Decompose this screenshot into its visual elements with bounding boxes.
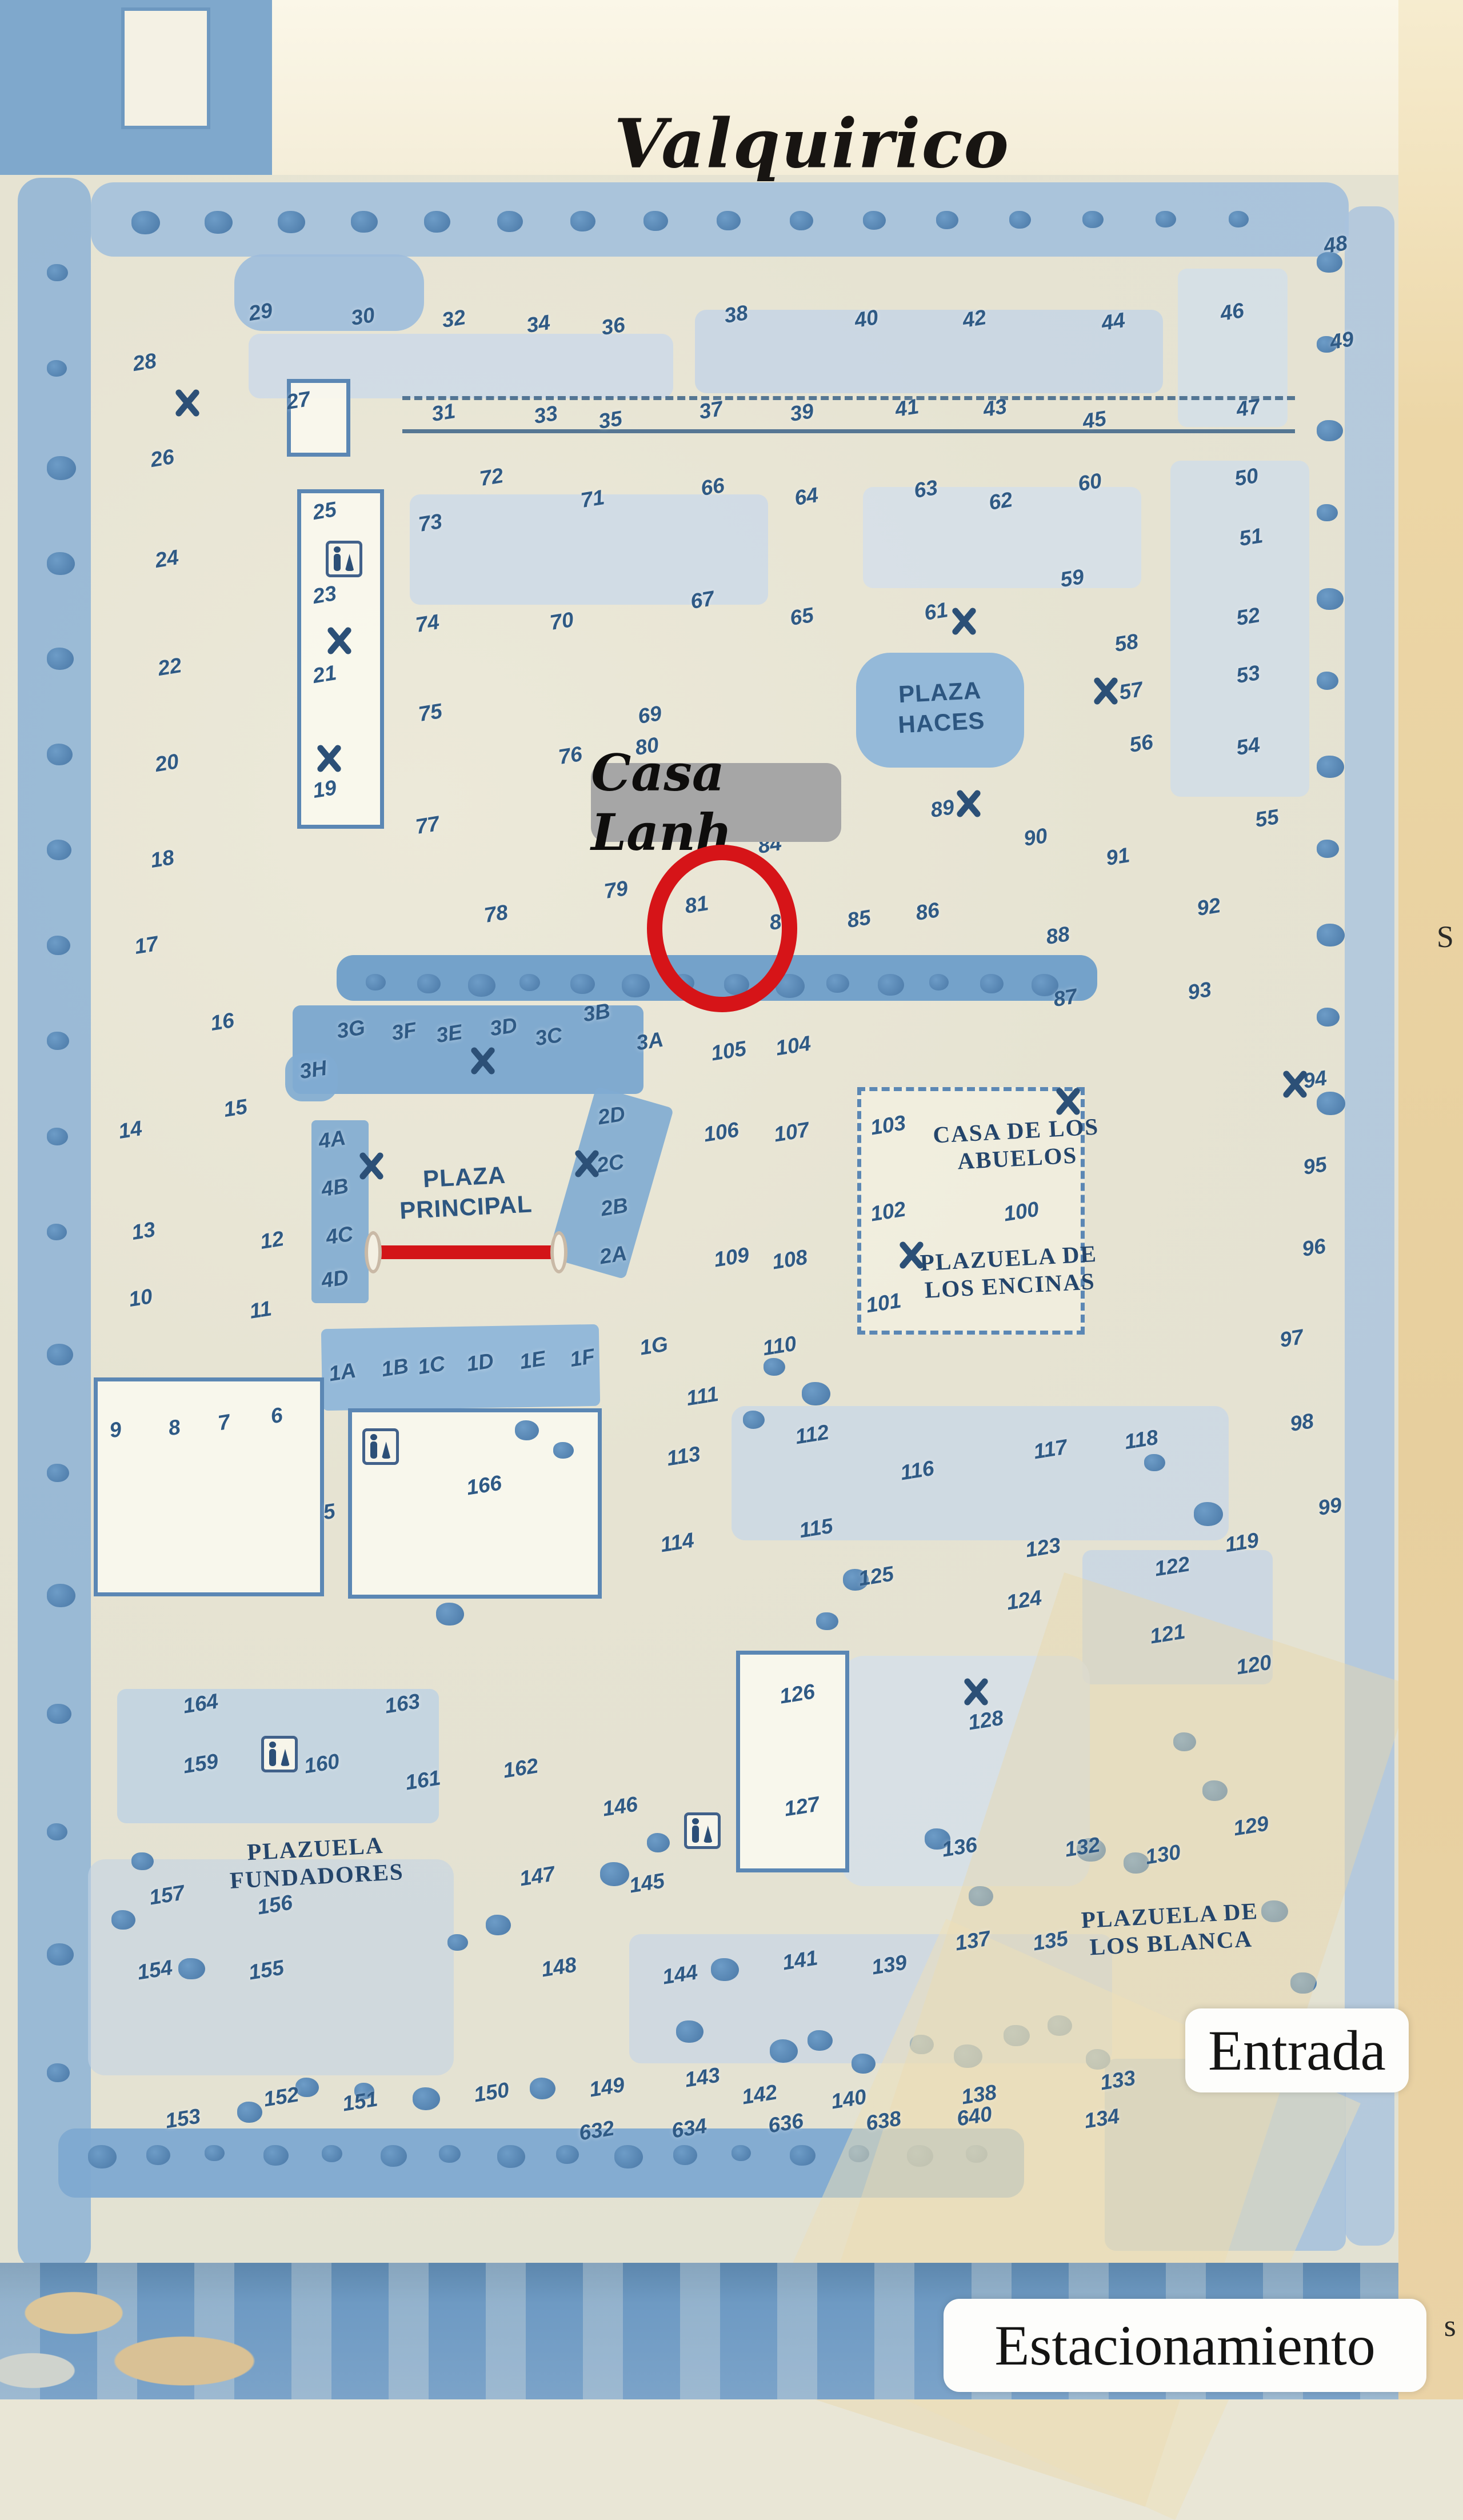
lot-label-4D: 4D [320,1265,350,1293]
lot-label-12: 12 [259,1227,286,1254]
lot-label-59: 59 [1059,565,1086,592]
map-block [695,310,1163,394]
tree-icon [1194,1502,1223,1526]
tree-icon [237,2102,262,2122]
tree-icon [1317,756,1344,778]
tree-icon [47,1704,71,1724]
lot-label-155: 155 [247,1955,286,1984]
lot-label-1E: 1E [518,1347,547,1375]
entrada-label: Entrada [1208,2018,1386,2083]
tree-icon [770,2039,798,2062]
lot-label-91: 91 [1104,843,1131,870]
tree-icon [351,211,377,233]
tree-icon [1317,672,1338,689]
lot-label-43: 43 [981,394,1008,422]
tree-icon [980,974,1004,993]
lot-label-166: 166 [465,1471,504,1500]
estacionamiento-callout: Estacionamiento [944,2299,1426,2393]
tree-icon [47,840,71,860]
lot-label-55: 55 [1253,805,1280,832]
lot-label-164: 164 [181,1689,220,1718]
lot-label-77: 77 [414,812,441,839]
tree-icon [497,211,522,231]
tree-icon [47,936,70,955]
lot-label-48: 48 [1322,231,1349,258]
tree-icon [47,1128,68,1145]
lot-label-79: 79 [602,876,629,904]
tree-icon [614,2145,643,2168]
lot-label-634: 634 [670,2114,709,2143]
lot-label-69: 69 [636,701,663,729]
lot-label-40: 40 [853,305,880,333]
lot-label-86: 86 [914,898,941,925]
lot-label-29: 29 [247,298,274,326]
scale-bar-end-right [550,1231,567,1273]
lot-label-3D: 3D [488,1013,518,1041]
lot-label-13: 13 [130,1217,157,1245]
tree-icon [47,1584,75,1607]
tree-icon [47,552,75,576]
tree-icon [497,2145,525,2168]
highlight-scale-bar [373,1245,559,1259]
tree-icon [131,1852,154,1871]
tree-icon [439,2145,461,2163]
tree-icon [808,2030,833,2051]
lot-label-111: 111 [685,1382,720,1411]
tree-icon [468,974,495,996]
tree-icon [1082,211,1103,228]
lot-label-2B: 2B [599,1193,630,1221]
tree-icon [878,974,904,996]
lot-label-54: 54 [1234,733,1261,760]
lot-label-163: 163 [383,1689,422,1718]
lot-label-30: 30 [349,303,376,330]
lot-label-22: 22 [156,653,183,681]
lot-label-17: 17 [133,932,159,959]
lot-label-46: 46 [1218,298,1245,326]
lot-label-117: 117 [1032,1435,1069,1464]
lot-label-15: 15 [222,1095,249,1123]
lot-label-44: 44 [1100,308,1127,336]
lot-label-60: 60 [1077,469,1104,496]
lot-label-18: 18 [149,845,176,873]
lot-label-640: 640 [955,2102,994,2131]
lot-label-53: 53 [1234,661,1261,688]
tree-icon [1229,211,1248,227]
tree-icon [1009,211,1030,229]
lot-label-50: 50 [1233,464,1260,491]
lot-label-36: 36 [599,313,626,340]
lot-label-39: 39 [788,399,815,426]
bottom-left-paths [0,2207,410,2399]
top-left-building [121,7,210,130]
area-label-plazuela-de-los-encinas: PLAZUELA DELOS ENCINAS [920,1240,1100,1304]
tree-icon [676,2020,703,2043]
crossed-utensils-icon [950,607,978,636]
lot-label-21: 21 [311,661,338,688]
casa-lanh-callout: Casa Lanh [591,763,841,842]
lot-label-159: 159 [181,1749,220,1778]
area-label-casa-de-los-abuelos: CASA DE LOSABUELOS [932,1113,1101,1176]
tree-icon [178,1958,205,1980]
lot-label-4C: 4C [324,1222,354,1250]
lot-label-1D: 1D [465,1349,495,1377]
lot-label-38: 38 [722,301,749,328]
lot-label-47: 47 [1234,394,1261,422]
tree-icon [790,2145,815,2166]
tree-icon [366,974,386,991]
tree-icon [205,2145,224,2161]
lot-label-10: 10 [127,1284,154,1312]
lot-label-99: 99 [1316,1493,1343,1520]
lot-label-4B: 4B [320,1174,350,1202]
tree-icon [1317,504,1338,521]
lot-label-14: 14 [117,1116,143,1144]
restroom-icon [684,1812,721,1849]
tree-icon [1317,1008,1340,1027]
lot-label-52: 52 [1234,603,1261,630]
lot-label-37: 37 [698,397,725,424]
lot-label-34: 34 [525,310,551,338]
lot-label-41: 41 [894,394,921,422]
crossed-utensils-icon [954,789,983,818]
lot-label-71: 71 [579,485,606,513]
lot-label-73: 73 [417,509,443,537]
tree-icon [381,2145,407,2167]
area-label-plazuela-fundadores: PLAZUELAFUNDADORES [227,1830,404,1894]
lot-label-42: 42 [961,305,988,333]
tree-icon [1317,1092,1345,1115]
tree-icon [600,1862,630,1886]
tree-icon [731,2145,751,2161]
tree-icon [852,2054,876,2074]
lot-label-93: 93 [1186,977,1213,1005]
highlight-circle [647,845,798,1012]
lot-label-98: 98 [1289,1409,1316,1436]
lot-label-56: 56 [1128,730,1154,757]
tree-icon [764,1358,785,1376]
map-block [1345,206,1394,2246]
tree-icon [929,974,949,990]
tree-icon [131,211,159,234]
lot-label-70: 70 [548,608,575,635]
lot-label-64: 64 [793,483,820,510]
tree-icon [278,211,305,233]
tree-icon [1156,211,1176,227]
tree-icon [47,744,73,765]
crossed-utensils-icon [325,626,354,655]
lot-label-88: 88 [1044,922,1071,949]
tree-icon [816,1612,838,1630]
lot-label-23: 23 [311,581,338,609]
tree-icon [515,1420,539,1440]
tree-icon [47,1344,73,1365]
crossed-utensils-icon [962,1678,990,1706]
tree-icon [802,1382,830,1405]
lot-label-3F: 3F [390,1018,418,1045]
tree-icon [711,1958,739,1981]
area-label-plaza-principal: PLAZAPRINCIPAL [397,1159,533,1226]
tree-icon [1317,588,1344,610]
lot-label-51: 51 [1237,524,1264,551]
restroom-icon [261,1736,298,1772]
lot-label-89: 89 [929,795,956,822]
tree-icon [530,2078,555,2099]
tree-icon [570,211,595,231]
tree-icon [47,1464,69,1482]
lot-label-2D: 2D [596,1102,626,1130]
lot-label-35: 35 [597,406,623,434]
tree-icon [863,211,885,229]
lot-label-3B: 3B [582,999,612,1027]
lot-label-3A: 3A [634,1027,665,1055]
tree-icon [826,974,849,992]
lot-label-61: 61 [923,598,950,626]
tree-icon [643,211,667,231]
area-label-plaza-haces: PLAZAHACES [896,676,985,740]
lot-label-25: 25 [311,497,338,525]
crossed-utensils-icon [357,1152,386,1180]
lot-label-72: 72 [478,464,505,491]
tree-icon [263,2145,289,2166]
lot-label-27: 27 [285,387,312,414]
tree-icon [743,1411,765,1428]
tree-icon [519,974,540,991]
lot-label-11: 11 [247,1296,273,1323]
tree-icon [622,974,650,997]
tree-icon [673,2145,697,2165]
lot-label-49: 49 [1328,327,1355,354]
lot-label-4A: 4A [317,1126,347,1154]
lot-label-101: 101 [864,1288,903,1317]
lot-label-45: 45 [1081,406,1108,434]
tree-icon [424,211,450,232]
crossed-utensils-icon [469,1047,497,1075]
tree-icon [447,1934,468,1951]
lot-label-154: 154 [136,1955,175,1984]
lot-label-74: 74 [414,610,441,638]
lot-label-1B: 1B [380,1353,410,1381]
tree-icon [717,211,740,230]
lot-label-24: 24 [153,545,180,573]
lot-label-96: 96 [1300,1234,1327,1261]
lot-label-19: 19 [311,776,338,803]
lot-label-75: 75 [417,699,443,726]
lot-label-57: 57 [1117,677,1144,705]
crossed-utensils-icon [1281,1070,1309,1099]
tree-icon [1317,420,1343,441]
lot-label-1C: 1C [417,1351,447,1379]
entrada-callout: Entrada [1185,2008,1409,2092]
tree-icon [413,2087,440,2110]
lot-label-28: 28 [131,349,158,376]
lot-label-33: 33 [532,401,559,429]
lot-label-63: 63 [913,476,940,503]
crossed-utensils-icon [1092,677,1120,705]
road-line [402,396,1295,400]
area-label-plazuela-de-los-blanca: PLAZUELA DELOS BLANCA [1081,1897,1261,1961]
tree-icon [111,1910,135,1930]
tree-icon [556,2145,579,2164]
crossed-utensils-icon [897,1241,926,1269]
estacionamiento-label: Estacionamiento [994,2313,1375,2378]
lot-label-32: 32 [440,305,467,333]
scale-bar-end-left [365,1231,382,1273]
lot-label-97: 97 [1278,1325,1305,1353]
map-block [321,1324,601,1411]
lot-label-2A: 2A [598,1241,628,1269]
lot-label-118: 118 [1122,1425,1160,1454]
tree-icon [47,360,67,377]
tree-icon [1317,840,1339,858]
lot-label-3G: 3G [335,1015,367,1043]
map-photo: Valquirico 29303234363840424446484928273… [0,0,1463,2399]
tree-icon [322,2145,342,2162]
lot-label-1G: 1G [638,1332,670,1360]
lot-label-3C: 3C [533,1023,563,1051]
lot-label-76: 76 [557,742,584,769]
lot-label-160: 160 [302,1749,341,1778]
lot-label-95: 95 [1302,1152,1329,1180]
tree-icon [88,2145,117,2168]
tree-icon [205,211,232,234]
lot-label-26: 26 [149,445,176,472]
lot-label-87: 87 [1052,984,1078,1012]
tree-icon [47,1224,67,1240]
tree-icon [553,1442,574,1459]
lot-label-90: 90 [1022,824,1049,851]
tree-icon [436,1603,464,1626]
lot-label-3H: 3H [298,1056,328,1084]
margin-letter-s: s [1444,2308,1456,2343]
restroom-icon [326,541,362,577]
tree-icon [790,211,813,230]
crossed-utensils-icon [315,744,343,773]
road-line [402,429,1295,433]
lot-label-20: 20 [153,749,180,777]
lot-label-67: 67 [689,586,715,614]
lot-label-85: 85 [845,905,872,933]
casa-lanh-label: Casa Lanh [591,743,841,862]
tree-icon [146,2145,170,2165]
lot-label-78: 78 [482,900,509,928]
tree-icon [1317,924,1345,947]
restroom-icon [362,1428,399,1465]
lot-label-62: 62 [987,488,1014,515]
tree-icon [936,211,958,229]
lot-label-66: 66 [699,473,726,501]
map-building [94,1377,324,1596]
lot-label-1A: 1A [327,1359,357,1387]
tree-icon [417,974,441,993]
crossed-utensils-icon [173,389,202,417]
lot-label-65: 65 [788,603,815,630]
map-block [1178,269,1288,427]
lot-label-16: 16 [209,1008,235,1036]
tree-icon [486,1915,511,1935]
crossed-utensils-icon [573,1149,601,1178]
lot-label-3E: 3E [434,1020,463,1048]
lot-label-92: 92 [1195,893,1222,921]
tree-icon [47,456,76,480]
tree-icon [647,1833,670,1852]
margin-letter-S: S [1437,919,1454,955]
crossed-utensils-icon [1054,1087,1082,1116]
lot-label-58: 58 [1113,629,1140,657]
lot-label-31: 31 [430,399,457,426]
map-title: Valquirico [614,104,1010,183]
lot-label-1F: 1F [568,1344,596,1372]
